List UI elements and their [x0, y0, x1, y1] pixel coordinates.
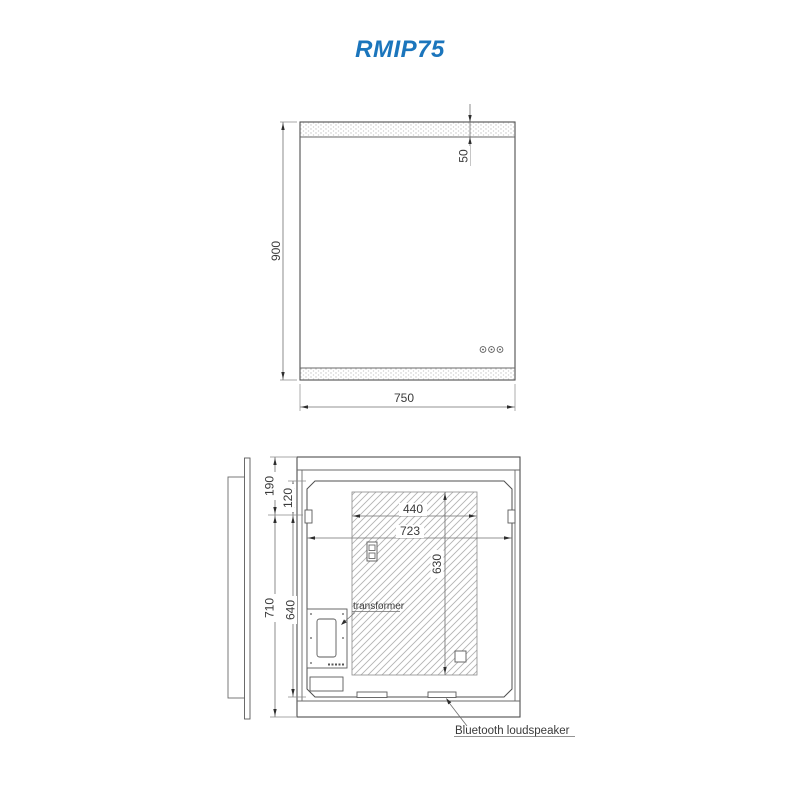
loudspeaker-label: Bluetooth loudspeaker [455, 725, 570, 737]
screw-dot-icon [310, 662, 312, 664]
connection-box [310, 677, 343, 691]
front-view: 900 50 750 [269, 104, 515, 411]
arrowhead-icon [273, 507, 276, 514]
arrowhead-icon [273, 516, 276, 523]
body-height-dim-label: 710 [263, 598, 277, 618]
screw-dot-icon [342, 637, 344, 639]
vent-dot-icon [342, 664, 344, 666]
backplate-hatched-area [352, 492, 477, 675]
cavity-width-dim-label: 723 [400, 524, 420, 538]
bottom-tab [357, 692, 387, 698]
left-hanger-bracket [305, 510, 312, 523]
arrowhead-icon [301, 405, 308, 408]
arrowhead-icon [291, 516, 294, 523]
right-hanger-bracket [508, 510, 515, 523]
arrowhead-icon [291, 689, 294, 696]
transformer-body [317, 619, 336, 657]
frame-offset-dim-label: 120 [281, 488, 295, 508]
mirror-outline [300, 122, 515, 380]
front-height-dim-label: 900 [269, 241, 283, 261]
top-offset-dim-label: 190 [263, 476, 277, 496]
arrowhead-icon [281, 123, 284, 130]
side-profile-view [228, 458, 250, 719]
front-strip-dim-label: 50 [457, 149, 471, 163]
rear-view: transformer Bluetooth loudspeaker [228, 457, 575, 737]
arrowhead-icon [468, 115, 471, 122]
loudspeaker-tab [428, 692, 456, 698]
junction-box [455, 651, 466, 662]
vent-dot-icon [339, 664, 341, 666]
top-led-strip [301, 123, 515, 138]
bottom-led-strip [301, 369, 515, 380]
screw-dot-icon [310, 637, 312, 639]
touch-button-dot-icon [499, 349, 501, 351]
front-width-dimension: 750 [300, 384, 515, 411]
screw-dot-icon [342, 613, 344, 615]
side-profile-backbox [228, 477, 245, 698]
arrowhead-icon [281, 372, 284, 379]
touch-button-dot-icon [491, 349, 493, 351]
spec-sheet-page: RMIP75 [0, 0, 800, 800]
transformer-label: transformer [353, 601, 405, 612]
front-width-dim-label: 750 [394, 391, 414, 405]
inner-height-dim-label: 640 [284, 600, 298, 620]
vent-dot-icon [328, 664, 330, 666]
transformer-assembly [307, 609, 347, 668]
arrowhead-icon [273, 709, 276, 716]
front-height-dimension: 900 [269, 122, 297, 380]
vent-dot-icon [332, 664, 334, 666]
power-terminal [367, 542, 377, 561]
vent-dot-icon [335, 664, 337, 666]
backplate-width-dim-label: 440 [403, 502, 423, 516]
arrowhead-icon [507, 405, 514, 408]
side-profile-glass [245, 458, 251, 719]
technical-drawing: 900 50 750 [0, 0, 800, 800]
backplate-height-dim-label: 630 [430, 554, 444, 574]
touch-button-dot-icon [482, 349, 484, 351]
screw-dot-icon [310, 613, 312, 615]
arrowhead-icon [273, 458, 276, 465]
